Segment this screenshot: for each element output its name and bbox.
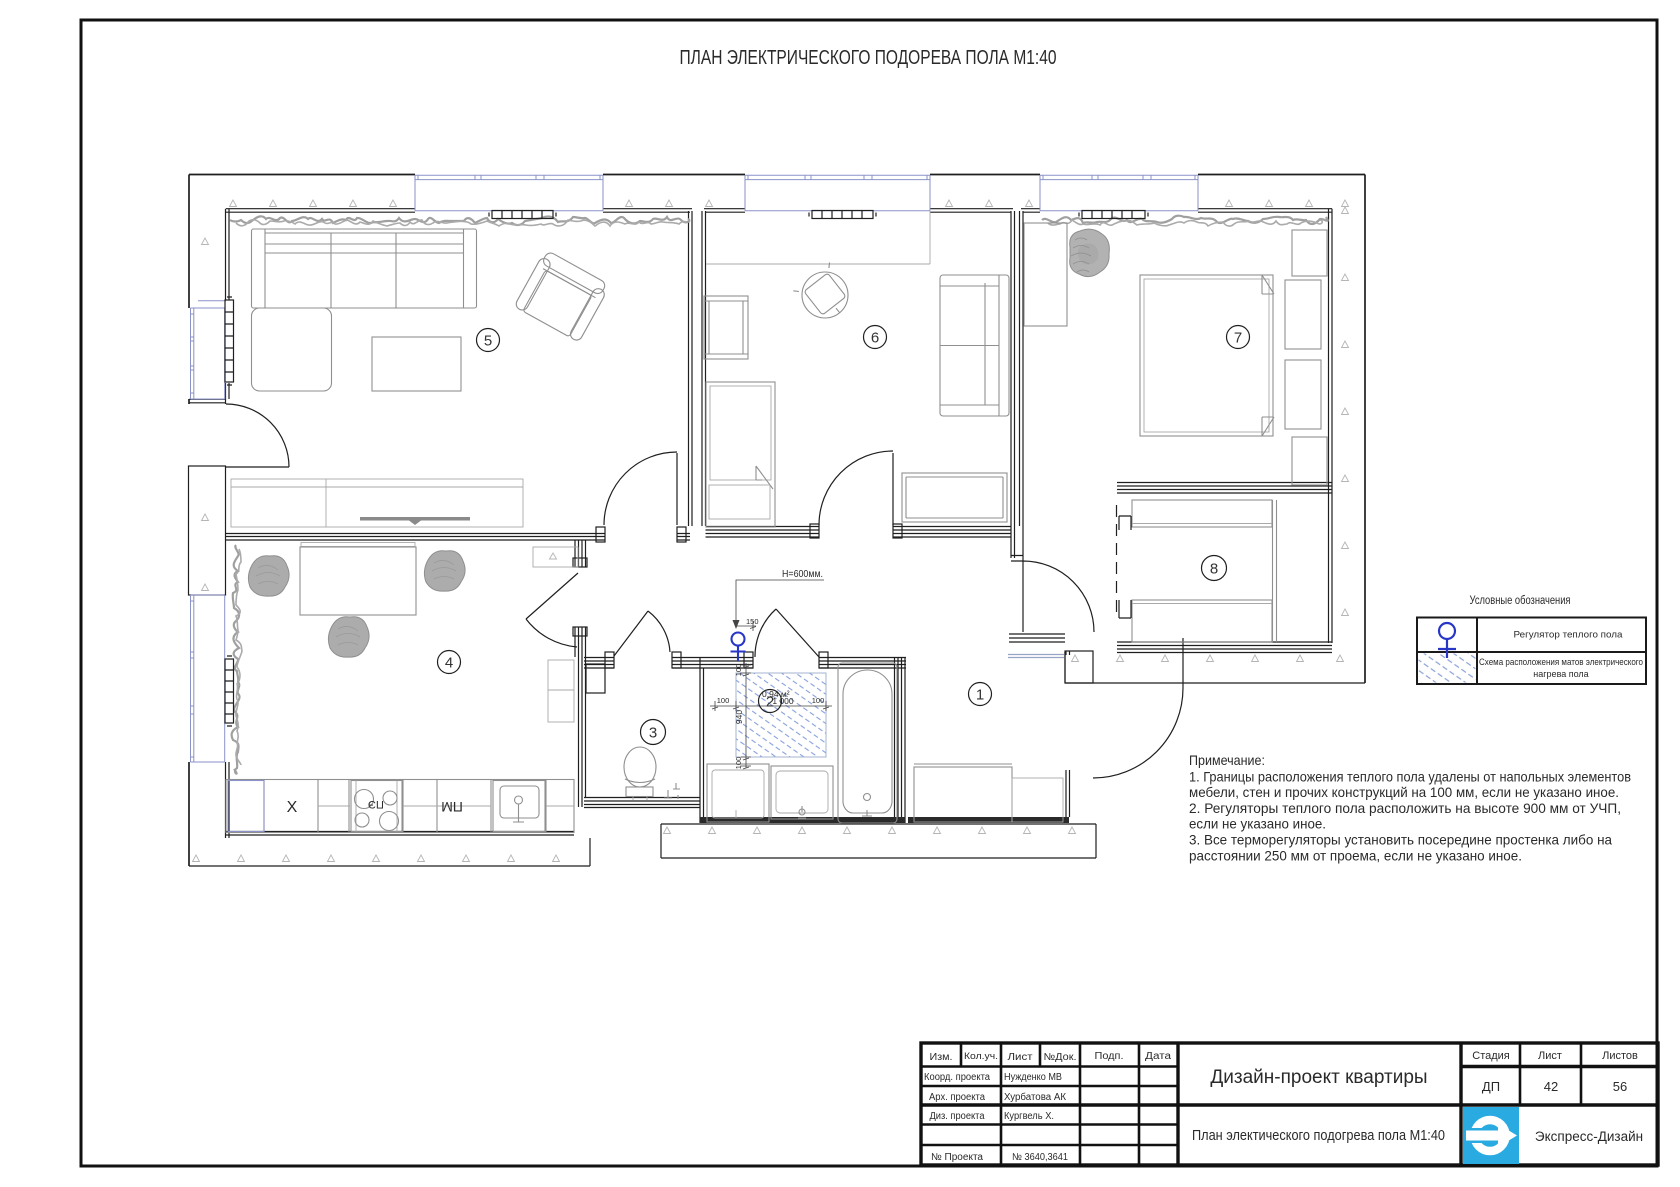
svg-text:Дата: Дата [1145,1051,1171,1062]
svg-text:3. Все терморегуляторы установ: 3. Все терморегуляторы установить посере… [1189,832,1612,848]
svg-text:Дизайн-проект квартиры: Дизайн-проект квартиры [1210,1067,1427,1088]
svg-text:План электического подогрева п: План электического подогрева пола М1:40 [1192,1128,1445,1144]
svg-text:42: 42 [1544,1079,1558,1094]
svg-text:6: 6 [871,330,879,347]
svg-text:8: 8 [1210,561,1218,578]
svg-text:Арх. проекта: Арх. проекта [929,1092,985,1103]
svg-text:Диз. проекта: Диз. проекта [930,1111,985,1122]
svg-text:Примечание:: Примечание: [1189,752,1265,768]
svg-text:Схема расположения матов элект: Схема расположения матов электрического [1479,657,1643,667]
svg-text:ПМ: ПМ [441,799,463,815]
svg-text:Стадия: Стадия [1472,1050,1510,1062]
svg-text:ПЭ: ПЭ [368,798,384,810]
svg-text:Подп.: Подп. [1095,1051,1124,1062]
svg-text:Листов: Листов [1602,1050,1638,1062]
svg-text:Н=600мм.: Н=600мм. [782,569,823,580]
svg-text:Регулятор теплого пола: Регулятор теплого пола [1514,630,1624,641]
svg-text:100: 100 [734,664,743,677]
svg-text:ПЛАН ЭЛЕКТРИЧЕСКОГО ПОДОРЕВА П: ПЛАН ЭЛЕКТРИЧЕСКОГО ПОДОРЕВА ПОЛА М1:40 [680,47,1057,69]
svg-text:5: 5 [484,333,492,350]
svg-text:7: 7 [1234,330,1242,347]
svg-text:Коорд. проекта: Коорд. проекта [924,1072,990,1083]
svg-text:4: 4 [445,655,453,672]
svg-text:3: 3 [649,725,657,742]
svg-text:Кол.уч.: Кол.уч. [964,1051,998,1062]
svg-text:1. Границы расположения теплог: 1. Границы расположения теплого пола уда… [1189,769,1631,785]
svg-text:№ Проекта: № Проекта [931,1152,983,1163]
svg-text:Нужденко МВ: Нужденко МВ [1004,1072,1062,1083]
svg-text:150: 150 [746,617,759,626]
svg-text:Экспресс-Дизайн: Экспресс-Дизайн [1535,1129,1643,1144]
svg-text:2. Регуляторы теплого пола рас: 2. Регуляторы теплого пола расположить н… [1189,800,1621,816]
svg-text:№Док.: №Док. [1044,1052,1077,1063]
svg-text:Изм.: Изм. [930,1052,953,1063]
svg-text:№ 3640,3641: № 3640,3641 [1012,1152,1068,1163]
svg-text:2: 2 [766,694,774,711]
svg-text:100: 100 [812,696,825,705]
svg-text:Лист: Лист [1538,1050,1562,1062]
svg-text:мебели, стен и прочих конструк: мебели, стен и прочих конструкций на 100… [1189,784,1619,800]
svg-text:если не указано иное.: если не указано иное. [1189,816,1326,832]
svg-text:Хурбатова АК: Хурбатова АК [1004,1091,1066,1103]
svg-text:Кургвель Х.: Кургвель Х. [1004,1111,1054,1122]
svg-text:нагрева пола: нагрева пола [1533,669,1588,679]
svg-text:расстоянии 250 мм от проема, е: расстоянии 250 мм от проема, если не ука… [1189,848,1522,864]
svg-text:Лист: Лист [1008,1052,1033,1063]
svg-text:1: 1 [976,687,984,704]
svg-text:ДП: ДП [1482,1079,1500,1094]
svg-text:100: 100 [734,757,743,770]
svg-text:X: X [287,799,298,816]
svg-text:Условные обозначения: Условные обозначения [1470,595,1571,607]
svg-text:56: 56 [1613,1079,1627,1094]
svg-text:100: 100 [717,696,730,705]
svg-text:940: 940 [734,710,744,724]
